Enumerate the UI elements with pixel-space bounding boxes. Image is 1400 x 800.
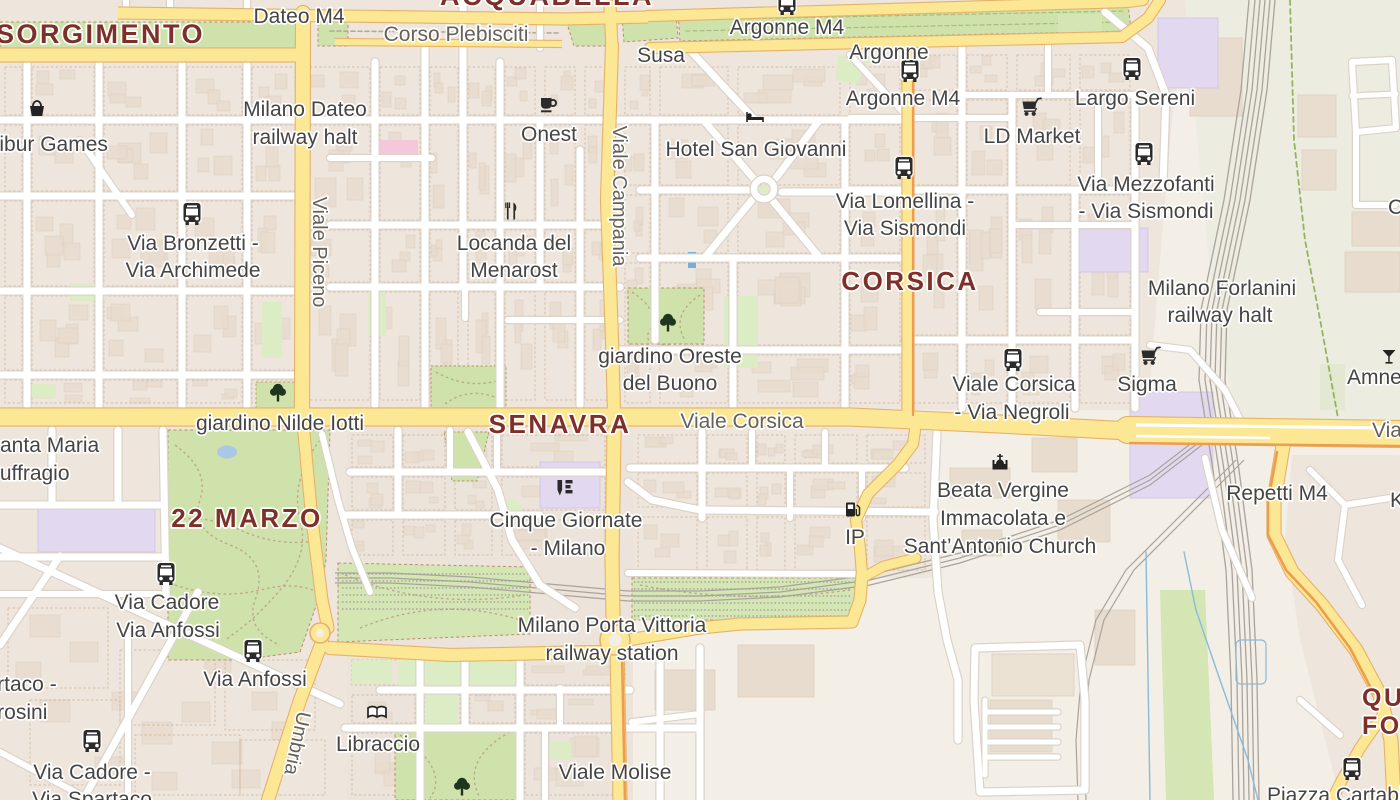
svg-text:Locanda del: Locanda del [457, 232, 571, 255]
svg-text:Via Anfossi: Via Anfossi [203, 668, 307, 691]
svg-text:Via Mezzofanti: Via Mezzofanti [1077, 173, 1214, 196]
svg-text:Milano Dateo: Milano Dateo [243, 98, 367, 121]
svg-text:Hotel San Giovanni: Hotel San Giovanni [666, 138, 847, 161]
svg-text:Argonne M4: Argonne M4 [846, 87, 961, 110]
svg-text:Immacolata e: Immacolata e [940, 507, 1066, 530]
svg-text:Via Sismondi: Via Sismondi [844, 217, 966, 240]
svg-text:Via Cadore -: Via Cadore - [33, 761, 151, 784]
svg-text:railway halt: railway halt [252, 126, 357, 149]
svg-text:del Buono: del Buono [623, 372, 718, 395]
svg-text:Argonne: Argonne [849, 41, 928, 64]
svg-text:- Via Negroli: - Via Negroli [954, 401, 1069, 424]
svg-text:Ambrosini: Ambrosini [0, 701, 47, 724]
svg-text:Ca: Ca [1388, 196, 1400, 219]
svg-text:- Via Sismondi: - Via Sismondi [1078, 200, 1213, 223]
svg-text:Via Bronzetti -: Via Bronzetti - [127, 232, 259, 255]
svg-text:Via Archimede: Via Archimede [125, 259, 260, 282]
svg-text:Viale Piceno: Viale Piceno [308, 197, 330, 308]
svg-text:RISORGIMENTO: RISORGIMENTO [0, 19, 205, 49]
svg-text:LD Market: LD Market [984, 125, 1081, 148]
svg-text:QUARTIERE: QUARTIERE [1362, 684, 1400, 712]
svg-text:Santa Maria: Santa Maria [0, 434, 100, 457]
svg-text:Milano Porta Vittoria: Milano Porta Vittoria [518, 614, 707, 637]
svg-text:Via Cadore: Via Cadore [115, 591, 220, 614]
svg-text:FORLANINI: FORLANINI [1362, 712, 1400, 740]
svg-text:Beata Vergine: Beata Vergine [937, 479, 1069, 502]
svg-text:Viale: Viale [1372, 419, 1400, 442]
svg-text:Viale Corsica: Viale Corsica [952, 373, 1076, 396]
svg-text:22 MARZO: 22 MARZO [171, 503, 322, 533]
svg-text:Menarost: Menarost [470, 259, 558, 282]
svg-text:Sant’Antonio Church: Sant’Antonio Church [904, 535, 1097, 558]
svg-text:Susa: Susa [637, 44, 685, 67]
svg-text:Via Anfossi: Via Anfossi [116, 619, 220, 642]
svg-text:Piazza Cartabia: Piazza Cartabia [1267, 784, 1400, 800]
svg-text:Cinque Giornate: Cinque Giornate [490, 509, 643, 532]
svg-text:Dateo M4: Dateo M4 [253, 5, 344, 28]
svg-text:IP: IP [845, 526, 865, 549]
svg-text:- Milano: - Milano [531, 537, 606, 560]
svg-text:SENAVRA: SENAVRA [489, 409, 632, 439]
svg-text:Amnesty: Amnesty [1347, 366, 1400, 389]
svg-text:Onest: Onest [521, 123, 577, 146]
svg-text:del Suffragio: del Suffragio [0, 462, 70, 485]
svg-text:Excalibur Games: Excalibur Games [0, 133, 108, 156]
svg-text:railway station: railway station [545, 642, 678, 665]
svg-text:Via Lomellina -: Via Lomellina - [836, 190, 975, 213]
svg-text:K: K [1390, 489, 1400, 512]
svg-text:CORSICA: CORSICA [841, 266, 978, 296]
svg-text:Sigma: Sigma [1117, 373, 1177, 396]
svg-text:Milano Forlanini: Milano Forlanini [1148, 277, 1296, 300]
svg-text:Viale Molise: Viale Molise [559, 761, 672, 784]
svg-text:Corso Plebisciti: Corso Plebisciti [384, 23, 529, 46]
svg-text:Via Spartaco: Via Spartaco [32, 788, 152, 800]
svg-text:Largo Sereni: Largo Sereni [1075, 87, 1195, 110]
svg-text:Argonne M4: Argonne M4 [730, 16, 845, 39]
svg-text:Via Spartaco -: Via Spartaco - [0, 673, 57, 696]
svg-text:Viale Corsica: Viale Corsica [680, 410, 804, 433]
svg-text:railway halt: railway halt [1167, 304, 1272, 327]
svg-text:Repetti M4: Repetti M4 [1226, 482, 1328, 505]
svg-text:Viale Campania: Viale Campania [608, 126, 630, 268]
svg-text:ACQUABELLA: ACQUABELLA [440, 0, 654, 11]
svg-text:Libraccio: Libraccio [336, 733, 420, 756]
svg-text:giardino Oreste: giardino Oreste [598, 345, 742, 368]
svg-text:giardino Nilde Iotti: giardino Nilde Iotti [196, 412, 364, 435]
